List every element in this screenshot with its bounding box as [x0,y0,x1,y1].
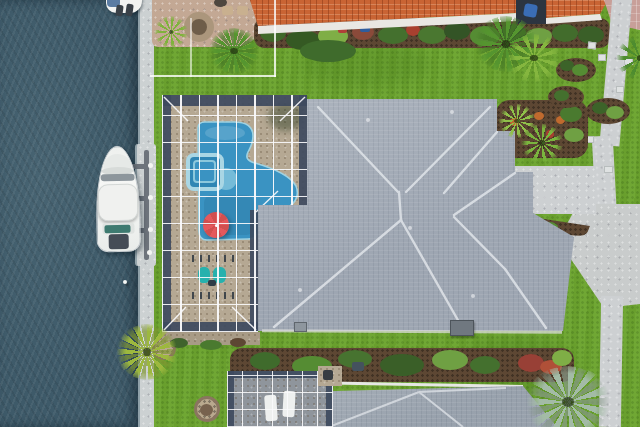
shrub [554,90,569,101]
fence [274,0,276,77]
shrub [606,106,624,119]
stepping-stone [616,86,624,93]
stepping-stone [598,54,606,61]
shrub [552,24,578,42]
shrub [470,356,500,374]
palm-heart [230,48,237,54]
shrub [432,350,468,370]
stepping-stone [604,166,613,173]
shrub [300,40,356,62]
shrub [380,354,424,376]
outboard-motor [109,234,129,249]
palm-tree [116,324,178,380]
dock-piling [148,195,153,200]
palm-heart [539,140,545,145]
palm-tree [208,28,260,74]
ac-unit [294,322,307,332]
orange-roof-right [546,0,608,26]
dock-piling [148,163,153,168]
fire-pit [184,12,214,42]
bird [123,280,127,284]
shrub [200,340,222,350]
palm-tree [506,34,562,82]
grill [323,370,333,380]
palm-heart [562,397,574,407]
patio-chair [222,6,234,16]
mulch-patch [230,338,246,347]
stern-mat [104,225,130,233]
shrub [560,106,582,122]
shrub [552,350,572,366]
windshield [101,174,135,182]
palm-heart [514,119,519,124]
boat [93,144,145,257]
palm-heart [143,348,152,356]
stone-circle-center [200,404,213,416]
banana-plant [520,124,564,162]
recess-blue-object [523,3,538,18]
dock-piling [147,250,152,255]
ac-unit [450,320,474,336]
patio-chair [237,6,249,16]
stepping-stone [588,42,597,50]
fence [150,75,276,77]
palm-heart [637,55,640,61]
aerial-photo [0,0,640,427]
shrub [572,64,588,76]
shrub [250,352,280,370]
bimini-top [98,184,139,222]
shrub [564,128,584,142]
neighbor-roof-bottom [301,386,557,427]
dock-piling [148,227,153,232]
palm-tree [154,16,188,48]
roof-ridge-lines [301,386,557,427]
fence [190,18,192,77]
yard-equipment [352,362,364,371]
